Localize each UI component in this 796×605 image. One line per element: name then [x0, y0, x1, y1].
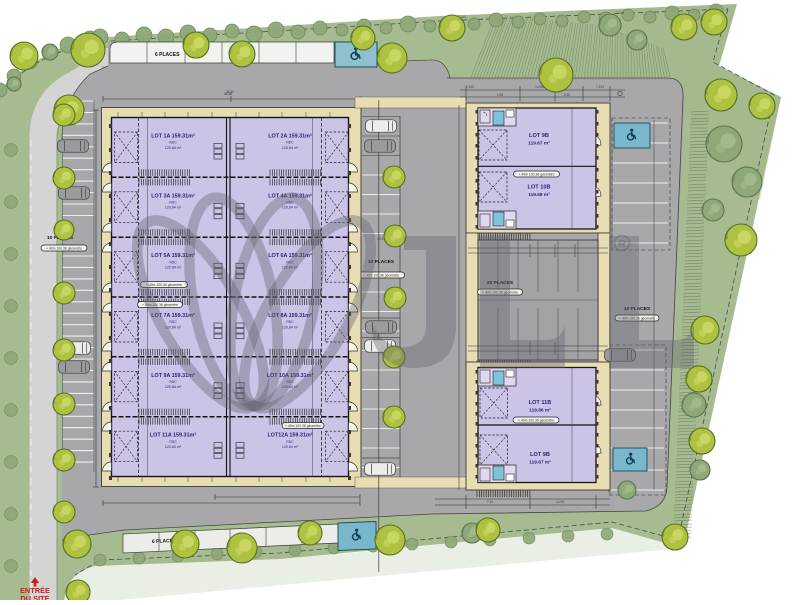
svg-text:120.84 m²: 120.84 m² [282, 146, 299, 150]
svg-text:LOT 9B: LOT 9B [529, 133, 549, 139]
svg-text:RDC: RDC [169, 320, 177, 324]
svg-text:7.10: 7.10 [487, 500, 493, 504]
svg-text:LOT12A 159.31m²: LOT12A 159.31m² [267, 433, 312, 439]
svg-text:LOT 1A 159.31m²: LOT 1A 159.31m² [151, 134, 195, 140]
svg-text:RDC: RDC [169, 141, 177, 145]
svg-text:R: R [618, 238, 626, 250]
svg-text:RDC: RDC [169, 380, 177, 384]
svg-text:119.68 m²: 119.68 m² [528, 192, 550, 198]
svg-text:LOT 11A 159.31m²: LOT 11A 159.31m² [150, 433, 196, 439]
svg-text:120.84 m²: 120.84 m² [165, 445, 182, 449]
svg-text:6 PLACES: 6 PLACES [155, 52, 180, 58]
svg-text:LOT 11B: LOT 11B [529, 400, 552, 406]
svg-text:LOT 9B: LOT 9B [530, 452, 550, 458]
svg-text:RDC: RDC [286, 141, 294, 145]
svg-text:+.40m 100.36 géomètre: +.40m 100.36 géomètre [146, 283, 182, 287]
svg-text:RDC: RDC [169, 201, 177, 205]
svg-text:120.84 m²: 120.84 m² [165, 266, 182, 270]
svg-text:8.35: 8.35 [564, 93, 570, 97]
svg-text:120.84 m²: 120.84 m² [165, 206, 182, 210]
svg-text:7.245: 7.245 [596, 85, 604, 89]
svg-text:+.40m 100.36 géomètre: +.40m 100.36 géomètre [518, 172, 554, 176]
svg-text:+.40m 100.36 géomètre: +.40m 100.36 géomètre [285, 424, 321, 428]
svg-text:RDC: RDC [286, 440, 294, 444]
svg-text:120.84 m²: 120.84 m² [165, 146, 182, 150]
svg-text:LOT 10B: LOT 10B [527, 185, 550, 191]
svg-text:119.67 m²: 119.67 m² [528, 141, 550, 147]
svg-text:+.40m 100.36 géomètre: +.40m 100.36 géomètre [518, 418, 554, 422]
svg-text:119.86 m²: 119.86 m² [529, 408, 551, 414]
svg-text:14.98: 14.98 [556, 500, 564, 504]
svg-text:120.84 m²: 120.84 m² [282, 445, 299, 449]
svg-text:DU SITE: DU SITE [20, 594, 49, 600]
svg-text:36.98: 36.98 [226, 90, 234, 94]
svg-text:120.84 m²: 120.84 m² [165, 385, 182, 389]
svg-text:RDC: RDC [169, 440, 177, 444]
svg-text:119.67 m²: 119.67 m² [529, 460, 551, 466]
svg-text:RDC: RDC [286, 320, 294, 324]
svg-text:+.40m 100.36 géomètre: +.40m 100.36 géomètre [46, 246, 82, 250]
svg-text:LOT 3A 159.31m²: LOT 3A 159.31m² [151, 193, 195, 199]
svg-text:120.84 m²: 120.84 m² [282, 206, 299, 210]
svg-text:7.245: 7.245 [616, 11, 624, 15]
svg-text:120.84 m²: 120.84 m² [282, 325, 299, 329]
svg-text:RDC: RDC [169, 260, 177, 264]
svg-text:LOT 2A 159.31m²: LOT 2A 159.31m² [268, 134, 312, 140]
svg-text:5.35: 5.35 [497, 93, 503, 97]
svg-text:7.245: 7.245 [466, 85, 474, 89]
